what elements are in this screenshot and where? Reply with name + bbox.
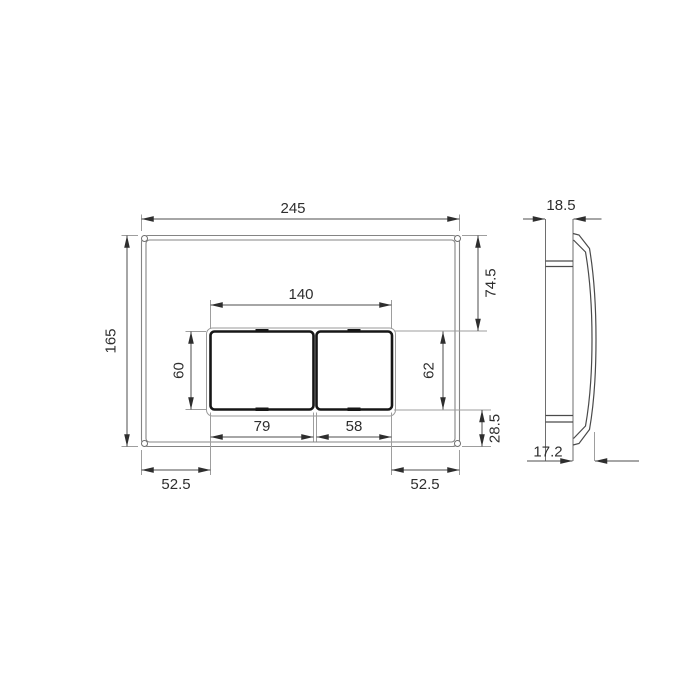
big-button-width-label: 79 <box>254 418 271 435</box>
side-dimension-lines <box>523 219 639 461</box>
overall-height-label: 165 <box>103 328 120 353</box>
big-flush-button <box>211 332 314 410</box>
flush-plate-dimension-drawing: 245 165 140 74.5 60 62 79 58 28.5 52.5 5… <box>0 0 700 700</box>
notch <box>256 408 269 412</box>
total-depth-label: 18.5 <box>546 197 575 214</box>
small-button-width-label: 58 <box>346 418 363 435</box>
notch <box>348 408 361 412</box>
cutout-width-label: 140 <box>288 286 313 303</box>
drawing-canvas: 245 165 140 74.5 60 62 79 58 28.5 52.5 5… <box>0 0 700 700</box>
bottom-left-offset-label: 52.5 <box>161 476 190 493</box>
front-view: 245 165 140 74.5 60 62 79 58 28.5 52.5 5… <box>103 200 504 493</box>
top-to-cutout-label: 74.5 <box>483 268 500 297</box>
notch <box>348 329 361 333</box>
bottom-right-offset-label: 52.5 <box>410 476 439 493</box>
small-flush-button <box>317 332 393 410</box>
cutout-to-bottom-label: 28.5 <box>487 414 504 443</box>
side-mounting-frame <box>546 261 574 422</box>
notch <box>256 329 269 333</box>
corner-mark <box>142 441 148 447</box>
corner-mark <box>142 236 148 242</box>
corner-mark <box>455 441 461 447</box>
side-dimension-labels: 18.5 17.2 <box>533 197 575 461</box>
corner-mark <box>455 236 461 242</box>
front-protrusion-label: 17.2 <box>533 444 562 461</box>
cutout-height-label: 62 <box>421 362 438 379</box>
side-profile-inner-curve <box>574 240 593 439</box>
side-view: 18.5 17.2 <box>523 197 639 461</box>
button-height-label: 60 <box>171 362 188 379</box>
overall-width-label: 245 <box>280 200 305 217</box>
